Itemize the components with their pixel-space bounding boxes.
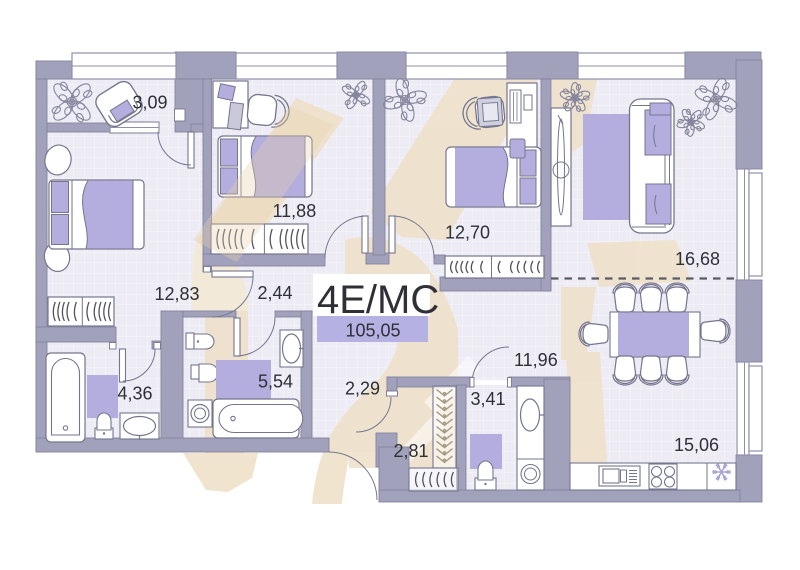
svg-text:5,54: 5,54 bbox=[258, 372, 293, 392]
svg-text:2,29: 2,29 bbox=[345, 379, 380, 399]
svg-text:2,81: 2,81 bbox=[394, 441, 429, 461]
svg-text:12,70: 12,70 bbox=[445, 223, 490, 243]
svg-text:3,09: 3,09 bbox=[133, 93, 168, 113]
svg-text:12,83: 12,83 bbox=[155, 284, 200, 304]
svg-text:4,36: 4,36 bbox=[118, 384, 153, 404]
svg-text:2,44: 2,44 bbox=[258, 283, 293, 303]
svg-text:16,68: 16,68 bbox=[675, 249, 720, 269]
svg-text:105,05: 105,05 bbox=[345, 321, 400, 341]
svg-text:11,96: 11,96 bbox=[514, 350, 558, 370]
svg-text:15,06: 15,06 bbox=[674, 435, 719, 455]
svg-text:4Е/МС: 4Е/МС bbox=[317, 278, 439, 322]
svg-text:11,88: 11,88 bbox=[273, 201, 317, 221]
svg-text:3,41: 3,41 bbox=[471, 389, 506, 409]
